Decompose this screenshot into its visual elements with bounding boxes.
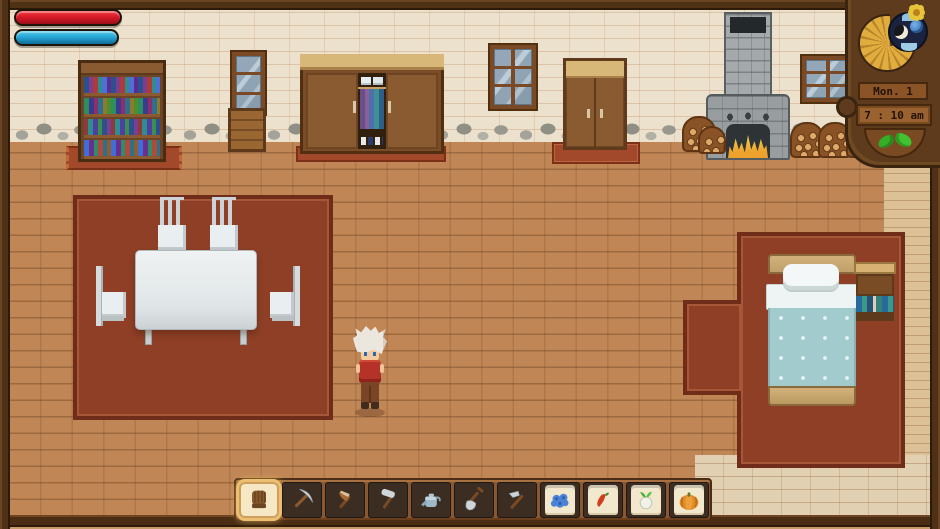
bed[interactable] — [768, 254, 856, 406]
bookshelf[interactable] — [78, 60, 166, 162]
book-row — [84, 77, 160, 93]
hotbar-slot-shovel[interactable] — [454, 482, 494, 518]
nightstand-bookshelf[interactable] — [854, 262, 896, 326]
door-split — [594, 78, 596, 147]
hotbar-slot-axe[interactable] — [325, 482, 365, 518]
folded-clothes — [361, 77, 371, 85]
chair-leg — [272, 316, 294, 321]
door-handle — [587, 109, 590, 118]
nightstand-base — [856, 312, 894, 321]
chair-seat — [270, 292, 294, 318]
chair-seat — [158, 225, 186, 251]
wardrobe[interactable] — [300, 54, 444, 154]
character-shoe — [361, 402, 369, 409]
hotbar-slot-turnip-seeds[interactable] — [626, 482, 666, 518]
window-bar — [494, 84, 532, 87]
folded-clothes — [373, 77, 383, 85]
character-eye — [373, 352, 376, 356]
character-arm — [380, 364, 384, 373]
nightstand-drawer — [856, 274, 894, 296]
character-shirt — [359, 360, 381, 383]
wardrobe-door-right[interactable] — [386, 73, 438, 149]
seedling-leaf — [894, 132, 914, 148]
book-row — [84, 119, 160, 135]
hotbar-slot-hoe[interactable] — [497, 482, 537, 518]
wardrobe-top — [300, 54, 444, 70]
pickaxe-icon — [288, 486, 316, 514]
hotbar-slot-watering-can[interactable] — [411, 482, 451, 518]
flower-icon — [913, 9, 920, 16]
hotbar — [234, 478, 712, 522]
window-bar — [511, 49, 515, 105]
dining-table[interactable] — [135, 250, 257, 346]
sky-icon — [901, 43, 917, 51]
mana-bar — [14, 29, 119, 46]
book-row — [84, 98, 160, 114]
gear-decoration — [836, 96, 858, 118]
chair-back — [212, 197, 236, 227]
hotbar-slot-glove[interactable] — [239, 482, 279, 518]
table-top — [135, 250, 257, 330]
double-window — [490, 45, 536, 109]
chair-seat — [210, 225, 238, 251]
window-bar — [494, 66, 532, 69]
character-shoe — [371, 402, 379, 409]
character-pants-seam — [369, 386, 371, 403]
character-shadow — [355, 408, 385, 417]
window-bar — [806, 84, 850, 87]
time-label: 7 : 10 am — [856, 104, 932, 126]
seedling-leaf — [877, 134, 896, 149]
character-eye — [364, 352, 367, 356]
firewood-pile[interactable] — [698, 126, 726, 154]
table-leg — [240, 328, 247, 345]
hotbar-slot-blue-seeds[interactable] — [540, 482, 580, 518]
chair[interactable] — [96, 266, 128, 330]
nightstand-top — [854, 262, 896, 274]
window-bar — [236, 72, 261, 75]
chair-back — [160, 197, 184, 227]
door-handle — [600, 109, 603, 118]
game-screen: Mon. 1 7 : 10 am — [0, 0, 940, 529]
hotbar-slot-hammer[interactable] — [368, 482, 408, 518]
wooden-crate[interactable] — [228, 108, 266, 152]
chair-back — [293, 266, 300, 326]
bed-rug-extension — [683, 300, 741, 395]
room-border-top — [0, 0, 940, 10]
room-border-left — [0, 0, 10, 529]
bed-footboard — [768, 386, 856, 406]
blue-seeds-icon — [546, 486, 574, 514]
moon-icon — [894, 25, 908, 39]
character-arm — [356, 364, 360, 373]
wardrobe-handle — [353, 101, 356, 113]
axe-icon — [331, 486, 359, 514]
chair[interactable] — [158, 197, 186, 255]
wardrobe-handle — [388, 101, 391, 113]
front-door[interactable] — [563, 58, 627, 150]
fireplace-vents — [722, 112, 774, 122]
date-label: Mon. 1 — [858, 82, 928, 100]
hotbar-slot-pepper-seeds[interactable] — [583, 482, 623, 518]
hammer-icon — [374, 486, 402, 514]
shovel-icon — [460, 486, 488, 514]
window-bar — [826, 60, 830, 98]
chimney-opening — [730, 17, 766, 33]
day-night-dial — [888, 12, 928, 52]
planet-icon — [910, 20, 923, 33]
pillow — [783, 264, 839, 290]
hotbar-slot-pickaxe[interactable] — [282, 482, 322, 518]
hotbar-slot-pumpkin-seeds[interactable] — [669, 482, 709, 518]
nightstand-books — [856, 296, 894, 312]
door-lintel — [566, 61, 624, 78]
bed-blanket — [768, 308, 856, 390]
player-character — [351, 326, 389, 418]
chair-leg — [102, 316, 124, 321]
chair[interactable] — [210, 197, 238, 255]
seedling-icon — [878, 133, 912, 151]
time-text: 7 : 10 am — [864, 110, 924, 121]
turnip-seeds-icon — [632, 486, 660, 514]
health-bar — [14, 9, 122, 26]
wardrobe-door-left[interactable] — [306, 73, 358, 149]
pepper-seeds-icon — [589, 486, 617, 514]
chair-seat — [102, 292, 126, 318]
book-row — [84, 140, 160, 156]
hoe-icon — [503, 486, 531, 514]
window-bar — [236, 92, 261, 95]
chair[interactable] — [268, 266, 300, 330]
narrow-window — [232, 52, 265, 114]
hanging-clothes — [360, 89, 384, 129]
table-leg — [145, 328, 152, 345]
glove-icon — [245, 486, 273, 514]
shoes — [361, 137, 383, 145]
pumpkin-seeds-icon — [675, 486, 703, 514]
bookshelf-top — [81, 63, 163, 75]
date-text: Mon. 1 — [873, 86, 913, 97]
window-bar — [806, 71, 850, 74]
watering-can-icon — [417, 486, 445, 514]
